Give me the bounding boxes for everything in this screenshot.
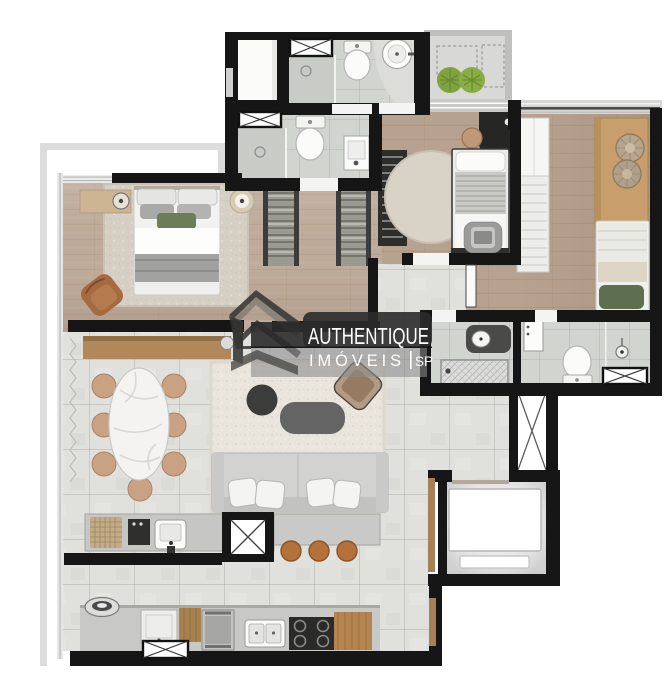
svg-text:SP: SP — [415, 354, 433, 369]
svg-text:AUTHENTIQUE: AUTHENTIQUE — [308, 323, 429, 349]
svg-text:IMÓVEIS: IMÓVEIS — [309, 351, 405, 370]
